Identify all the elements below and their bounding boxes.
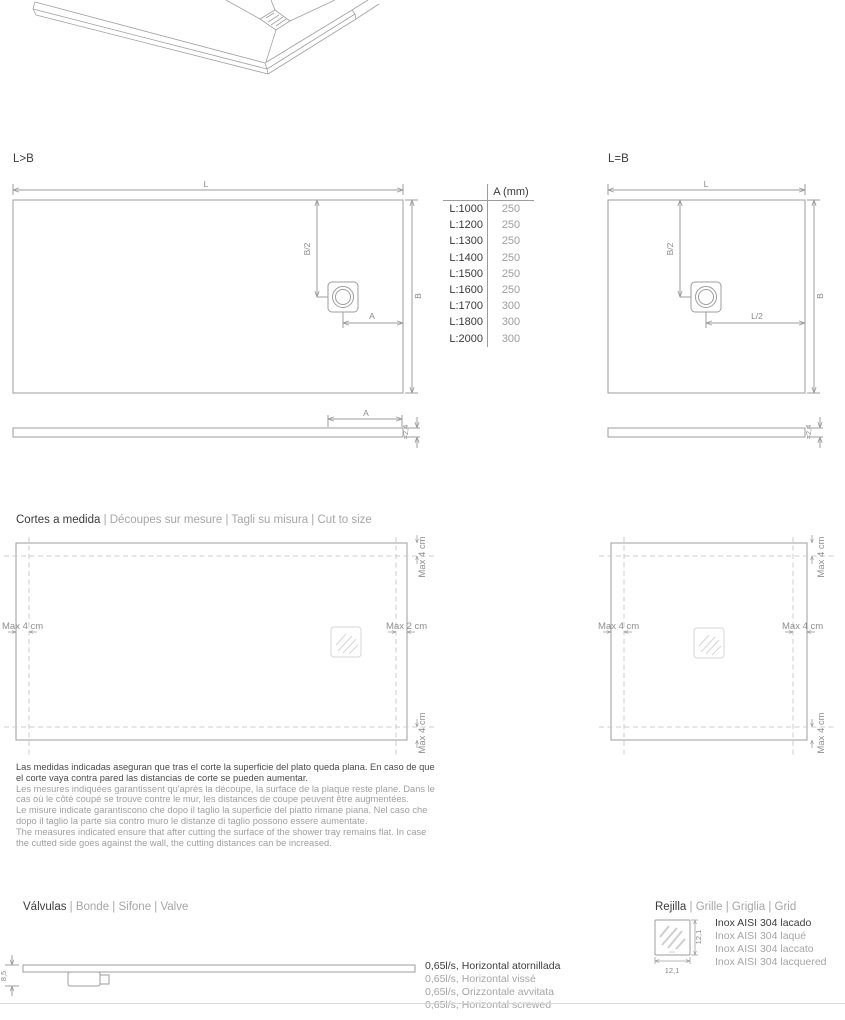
row-value: 250 xyxy=(488,235,534,247)
grille-square xyxy=(655,920,690,955)
cut-to-size-notes: Las medidas indicadas aseguran que tras … xyxy=(16,762,440,848)
valves-heading: Válvulas | Bonde | Sifone | Valve xyxy=(23,901,188,913)
row-label: L:1800 xyxy=(443,314,488,330)
max-cut-left-label: Max 4 cm xyxy=(598,621,639,632)
datasheet-page: L>B xyxy=(0,0,845,1020)
table-row: L:1000250 xyxy=(443,201,534,217)
row-label: L:1600 xyxy=(443,282,488,298)
dim-label-B: B xyxy=(815,293,825,299)
row-value: 250 xyxy=(488,284,534,296)
table-header-label-cell xyxy=(443,184,488,200)
max-cut-left-label: Max 4 cm xyxy=(2,621,43,632)
max-cut-bottom-label: Max 4 cm xyxy=(816,712,827,753)
table-header-a-mm: A (mm) xyxy=(488,186,534,198)
cut-rect-diagram: Max 4 cm Max 4 cm Max 2 cm Max 4 cm xyxy=(0,535,445,765)
valve-profile-drawing: 8,5 xyxy=(0,948,430,1003)
shower-tray-3d-drawing xyxy=(30,0,380,85)
grille-width-dim-label: 12,1 xyxy=(665,966,680,975)
grille-spec-line: Inox AISI 304 lacado xyxy=(715,917,827,930)
square-tray-plan-diagram: L B B/2 L/2 ≈2,4 xyxy=(595,170,845,460)
grille-hatch-pattern xyxy=(660,926,685,952)
cut-to-size-heading: Cortes a medida | Découpes sur mesure | … xyxy=(16,514,372,526)
row-value: 250 xyxy=(488,268,534,280)
profile-dim-label-A: A xyxy=(363,408,369,418)
dim-label-L2: L/2 xyxy=(751,311,763,321)
valve-spec-line: 0,65l/s, Horizontal screwed xyxy=(425,999,560,1012)
cut-square-diagram: Max 4 cm Max 4 cm Max 4 cm Max 4 cm xyxy=(595,535,845,765)
profile-thickness-label: ≈2,4 xyxy=(804,425,813,440)
grille-spec-line: Inox AISI 304 laqué xyxy=(715,930,827,943)
diagram-label-l-equals-b: L=B xyxy=(608,153,629,165)
table-row: L:1200250 xyxy=(443,217,534,233)
row-label: L:1400 xyxy=(443,250,488,266)
grille-spec-line: Inox AISI 304 laccato xyxy=(715,943,827,956)
max-cut-top-label: Max 4 cm xyxy=(816,536,827,577)
row-label: L:1200 xyxy=(443,217,488,233)
table-row: L:1700300 xyxy=(443,298,534,314)
tray-3d-drain-icon xyxy=(260,10,290,30)
row-value: 300 xyxy=(488,333,534,345)
table-row: L:1500250 xyxy=(443,266,534,282)
row-label: L:2000 xyxy=(443,331,488,347)
note-english: The measures indicated ensure that after… xyxy=(16,827,440,849)
grille-title: Rejilla xyxy=(655,901,686,913)
row-label: L:1000 xyxy=(443,201,488,217)
grille-specs: Inox AISI 304 lacado Inox AISI 304 laqué… xyxy=(715,917,827,969)
max-cut-top-label: Max 4 cm xyxy=(417,536,428,577)
dim-label-B2: B/2 xyxy=(302,242,312,255)
square-tray-drain xyxy=(691,282,721,312)
table-row: L:2000300 xyxy=(443,331,534,347)
rect-tray-profile xyxy=(13,415,420,448)
valve-height-dim-label: 8,5 xyxy=(0,971,8,981)
bottom-divider-line xyxy=(0,1003,845,1004)
table-header-row: A (mm) xyxy=(443,184,534,201)
valve-spec-line: 0,65l/s, Orizzontale avvitata xyxy=(425,986,560,999)
rect-tray-drain xyxy=(328,282,358,312)
tray-3d-edges xyxy=(33,0,379,74)
table-row: L:1600250 xyxy=(443,282,534,298)
diagram-label-l-greater-b: L>B xyxy=(13,153,34,165)
max-cut-bottom-label: Max 4 cm xyxy=(417,712,428,753)
note-spanish: Las medidas indicadas aseguran que tras … xyxy=(16,762,440,784)
row-label: L:1700 xyxy=(443,298,488,314)
row-value: 250 xyxy=(488,219,534,231)
row-value: 250 xyxy=(488,203,534,215)
row-label: L:1300 xyxy=(443,233,488,249)
valves-title: Válvulas xyxy=(23,901,66,913)
valve-spec-line: 0,65l/s, Horizontal vissé xyxy=(425,973,560,986)
note-french: Les mesures indiquées garantissent qu'ap… xyxy=(16,784,440,806)
valves-translations: | Bonde | Sifone | Valve xyxy=(66,901,188,913)
dim-label-L: L xyxy=(704,179,709,189)
table-row: L:1300250 xyxy=(443,233,534,249)
note-italian: Le misure indicate garantiscono che dopo… xyxy=(16,805,440,827)
cut-rect-cutting-lines xyxy=(4,537,434,757)
grille-dimension-lines xyxy=(655,920,698,964)
square-tray-profile xyxy=(608,417,823,448)
dim-label-B2: B/2 xyxy=(665,242,675,255)
rect-tray-plan-diagram: L B B/2 A A ≈2,4 xyxy=(0,170,440,460)
table-row: L:1400250 xyxy=(443,250,534,266)
max-cut-right-label: Max 4 cm xyxy=(782,621,823,632)
profile-thickness-label: ≈2,4 xyxy=(401,425,410,440)
dim-label-L: L xyxy=(204,179,209,189)
cut-square-drain-icon xyxy=(694,628,724,658)
max-cut-right-label: Max 2 cm xyxy=(386,621,427,632)
drain-distance-table: A (mm) L:1000250 L:1200250 L:1300250 L:1… xyxy=(443,184,534,347)
row-label: L:1500 xyxy=(443,266,488,282)
dim-label-A: A xyxy=(369,311,375,321)
cut-to-size-title: Cortes a medida xyxy=(16,514,100,526)
row-value: 300 xyxy=(488,300,534,312)
grille-heading: Rejilla | Grille | Griglia | Grid xyxy=(655,901,796,913)
dim-label-B: B xyxy=(413,293,423,299)
grille-spec-line: Inox AISI 304 lacquered xyxy=(715,956,827,969)
row-value: 250 xyxy=(488,252,534,264)
grille-height-dim-label: 12,1 xyxy=(694,930,703,945)
valve-profile-shapes xyxy=(5,955,415,996)
cut-rect-drain-icon xyxy=(331,627,361,657)
cut-to-size-translations: | Découpes sur mesure | Tagli su misura … xyxy=(100,514,371,526)
valve-specs: 0,65l/s, Horizontal atornillada 0,65l/s,… xyxy=(425,960,560,1012)
row-value: 300 xyxy=(488,316,534,328)
valve-spec-line: 0,65l/s, Horizontal atornillada xyxy=(425,960,560,973)
table-row: L:1800300 xyxy=(443,314,534,330)
grille-translations: | Grille | Griglia | Grid xyxy=(686,901,796,913)
